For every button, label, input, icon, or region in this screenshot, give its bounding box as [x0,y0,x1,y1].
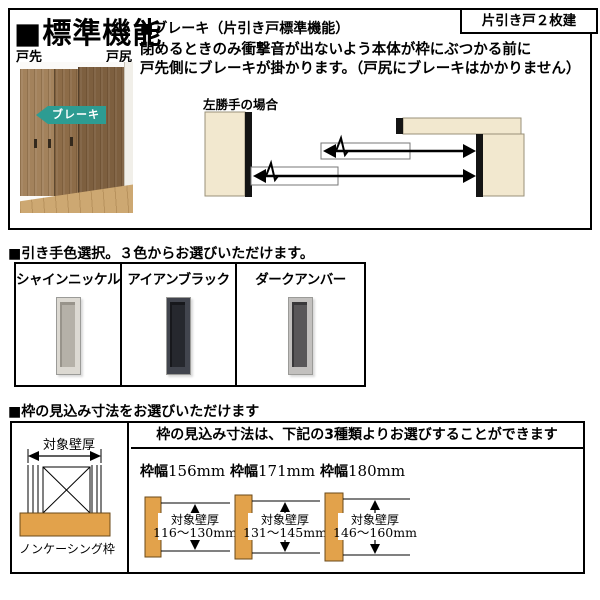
handle-option-shine-nickel: シャインニッケル [16,264,122,385]
door-panel-1 [20,69,54,196]
vert-arrowhead-top [280,502,290,512]
frame-table-header: 枠の見込み寸法は、下記の3種類よりお選びすることができます [131,423,583,449]
frame-width-prefix: 枠幅 [230,464,258,480]
door-panels [20,69,124,196]
frame-width-value: 180mm [348,462,405,480]
door-pull-1 [34,139,37,148]
wall-thickness-range: 146～160mm [333,525,417,540]
handle-color-table: シャインニッケル アイアンブラック ダークアンバー [14,262,366,387]
handle-option-label: ダークアンバー [237,268,364,288]
wall-section-diagram: 対象壁厚 ノンケーシング枠 [12,423,129,572]
frame-option-diagram: 対象壁厚 146～160mm [318,491,414,567]
dim-arrowhead-left [28,451,39,461]
frame-option-156: 枠幅156mm 対象壁厚 116～130mm [138,457,234,571]
brake-diagram: 左勝手の場合 [197,95,532,213]
pocket-top-bar [403,118,521,134]
frame-option-171: 枠幅171mm 対象壁厚 131～145mm [228,457,324,571]
door-pull-2 [48,139,51,148]
brake-description-line1: 閉めるときのみ衝撃音が出ないよう本体が枠にぶつかる前に [140,41,580,60]
frame-width-prefix: 枠幅 [140,464,168,480]
door-jamb [124,62,133,202]
frame-width-label: 枠幅180mm [320,461,405,481]
brake-description-line2: 戸先側にブレーキが掛かります。（戸尻にブレーキはかかりません） [140,60,580,79]
pocket-top-stop [396,118,403,134]
handle-swatch-iron-black [166,297,191,375]
frame-width-label: 枠幅156mm [140,461,225,481]
handle-section-heading: ■引き手色選択。３色からお選びいただけます。 [8,243,314,263]
pocket-stop-strip [476,134,483,197]
frame-dimension-table: 対象壁厚 ノンケーシング枠 [10,421,585,574]
handle-recess [292,302,307,367]
frame-sill [20,513,110,536]
door-photo: ブレーキ [20,62,133,213]
vert-arrowhead-bottom [280,542,290,552]
wall-thickness-range: 131～145mm [243,525,327,540]
handle-option-dark-amber: ダークアンバー [237,264,364,385]
brake-heading: ■ブレーキ（片引き戸標準機能） [140,18,349,38]
pocket-side-wall [482,134,524,196]
non-casing-label: ノンケーシング枠 [19,542,115,556]
spec-sheet-page: ■標準機能 片引き戸２枚建 ■ブレーキ（片引き戸標準機能） 閉めるときのみ衝撃音… [0,0,600,600]
frame-width-value: 171mm [258,462,315,480]
vert-arrowhead-bottom [190,540,200,550]
frame-option-diagram: 対象壁厚 131～145mm [228,491,324,567]
vert-arrowhead-bottom [370,544,380,554]
upper-right-arrowhead [463,144,476,158]
dim-arrowhead-right [90,451,101,461]
lower-right-arrowhead [463,169,476,183]
door-type-badge: 片引き戸２枚建 [460,8,598,34]
standard-feature-section: ■標準機能 片引き戸２枚建 ■ブレーキ（片引き戸標準機能） 閉めるときのみ衝撃音… [8,8,592,230]
handle-recess [60,302,75,367]
handle-swatch-dark-amber [288,297,313,375]
wall-thickness-label: 対象壁厚 [43,438,95,453]
handle-option-label: シャインニッケル [16,268,120,288]
frame-section-heading: ■枠の見込み寸法をお選びいただけます [8,401,259,421]
handle-recess [170,302,185,367]
frame-option-diagram: 対象壁厚 116～130mm [138,491,234,567]
handle-swatch-shine-nickel [56,297,81,375]
frame-width-label: 枠幅171mm [230,461,315,481]
frame-option-180: 枠幅180mm 対象壁厚 146～160mm [318,457,414,571]
door-pull-3 [70,137,73,146]
wall-thickness-range: 116～130mm [153,525,237,540]
left-wall [205,112,245,196]
door-panel-3 [78,67,124,199]
wall-section-cell: 対象壁厚 ノンケーシング枠 [12,423,129,572]
frame-options-area: 枠幅156mm 対象壁厚 116～130mm 枠幅171mm [131,451,583,572]
door-panel-2 [54,69,78,196]
brake-description: 閉めるときのみ衝撃音が出ないよう本体が枠にぶつかる前に 戸先側にブレーキが掛かり… [140,41,580,79]
vert-arrowhead-top [370,500,380,510]
handle-option-label: アイアンブラック [122,268,235,288]
handle-option-iron-black: アイアンブラック [122,264,237,385]
brake-arrow-label: ブレーキ [36,106,106,124]
frame-width-prefix: 枠幅 [320,464,348,480]
frame-width-value: 156mm [168,462,225,480]
diagram-caption: 左勝手の場合 [202,97,279,112]
